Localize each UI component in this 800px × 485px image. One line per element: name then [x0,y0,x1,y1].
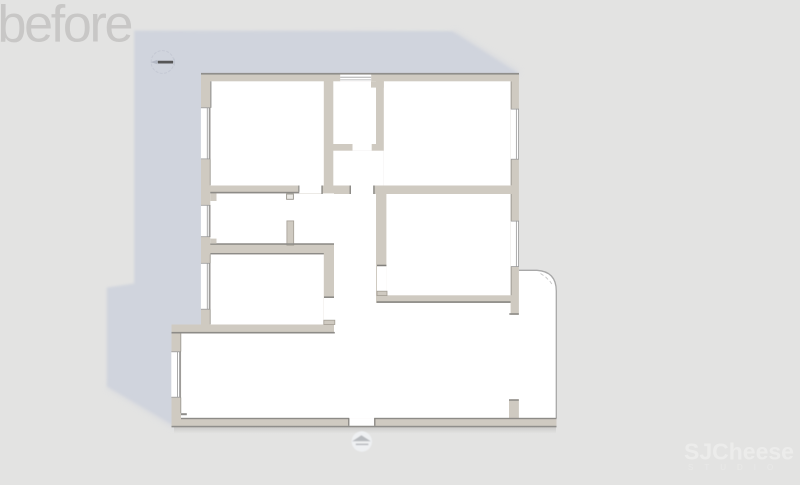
svg-text:SJCheese: SJCheese [684,439,794,465]
svg-text:STUDIO: STUDIO [688,463,784,472]
svg-text:before: before [0,0,132,54]
